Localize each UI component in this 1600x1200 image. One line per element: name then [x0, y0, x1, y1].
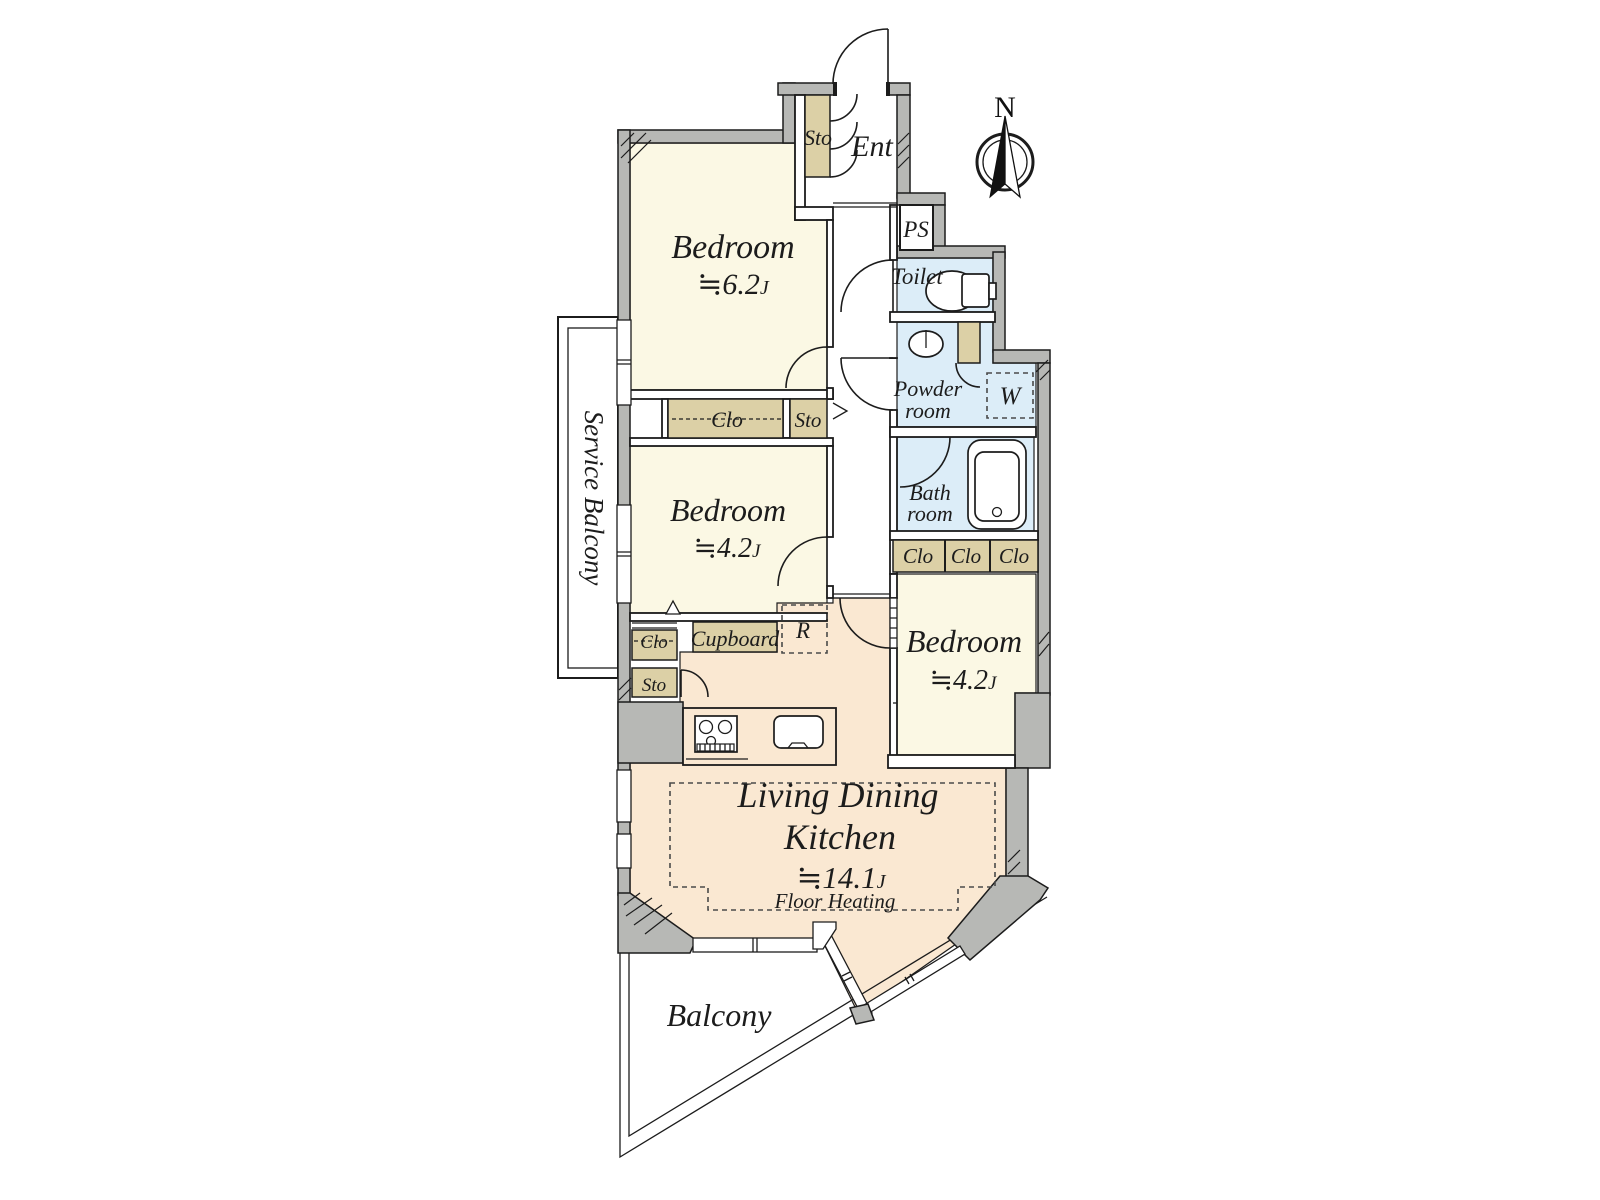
clo-row-label-1: Clo — [903, 544, 933, 568]
balcony-label: Balcony — [667, 997, 773, 1033]
compass-needle-dark — [990, 116, 1005, 197]
service-balcony: Service Balcony — [558, 317, 618, 678]
toilet-flush — [989, 283, 996, 299]
bathtub-inner — [975, 452, 1019, 521]
entrance-label: Ent — [850, 130, 893, 163]
bedroom-top-label: Bedroom — [671, 229, 794, 266]
bedroom-mid-floor — [630, 446, 827, 613]
clo-row-label-2: Clo — [951, 544, 981, 568]
bedroom-clo-label: Clo — [640, 632, 667, 653]
compass-needle-light — [1005, 116, 1020, 197]
hall-clo-label: Clo — [711, 407, 743, 432]
compass: N — [977, 91, 1033, 197]
bedroom-mid-label: Bedroom — [670, 492, 786, 528]
bedroom-right-area: ≒4.2J — [930, 665, 998, 696]
bath-label-line2: room — [907, 501, 953, 526]
entrance-sto-label: Sto — [804, 125, 832, 150]
ldk-label-line1: Living Dining — [736, 775, 938, 815]
bedroom-right-label: Bedroom — [906, 623, 1022, 659]
hall-sto-label: Sto — [795, 408, 822, 432]
clo-row-label-3: Clo — [999, 544, 1029, 568]
floor-plan-svg: Service Balcony Balcony — [0, 0, 1600, 1200]
kitchen-sto-label: Sto — [642, 675, 666, 696]
north-label: N — [994, 91, 1016, 124]
washer-label: W — [1000, 383, 1023, 410]
ps-label: PS — [902, 217, 929, 242]
bedroom-top-area: ≒6.2J — [697, 268, 770, 301]
refrigerator-label: R — [795, 618, 810, 643]
toilet-label: Toilet — [891, 264, 943, 289]
toilet-tank — [962, 274, 989, 307]
bedroom-mid-area: ≒4.2J — [694, 533, 762, 564]
hall-sto-arrow — [833, 403, 847, 419]
powder-cabinet-box — [958, 322, 980, 363]
powder-label-line2: room — [905, 398, 951, 423]
cupboard-label: Cupboard — [691, 626, 780, 651]
floor-heating-label: Floor Heating — [774, 889, 896, 913]
floor-plan-page: Service Balcony Balcony — [0, 0, 1600, 1200]
ldk-label-line2: Kitchen — [783, 817, 896, 857]
service-balcony-label: Service Balcony — [579, 411, 609, 586]
